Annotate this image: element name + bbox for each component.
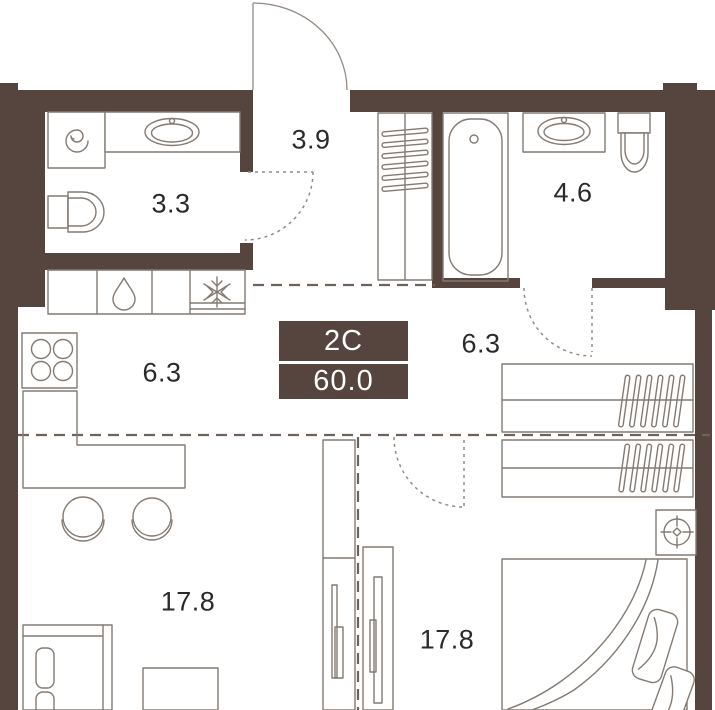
wall-segment	[0, 253, 253, 270]
wall-segment	[663, 83, 697, 90]
bar-counter	[23, 391, 185, 488]
room-label-living-room: 17.8	[161, 587, 216, 618]
wall-segment	[350, 90, 715, 112]
tv-bracket-bedroom	[370, 620, 376, 672]
entrance-door-swing-arc	[253, 3, 347, 90]
room-label-bathroom-large: 4.6	[553, 178, 592, 209]
wall-segment	[665, 92, 715, 310]
wall-segment	[592, 278, 665, 288]
tv-unit-bedroom	[363, 547, 393, 710]
bar-stool	[133, 498, 171, 536]
wall-segment	[695, 310, 712, 710]
unit-total-area: 60.0	[279, 364, 408, 399]
wall-segment	[0, 307, 18, 710]
room-label-kitchen: 6.3	[142, 358, 181, 389]
blanket-fold	[508, 560, 646, 709]
bathroom-large-fixtures	[443, 113, 650, 281]
room-label-bedroom: 17.8	[420, 625, 475, 656]
vanity-counter	[523, 113, 605, 152]
wall-segment	[0, 112, 45, 307]
wall-segment	[240, 243, 253, 270]
bathtub	[443, 113, 508, 281]
tv-unit-living	[323, 440, 355, 710]
coffee-table	[143, 668, 218, 710]
kitchen-counter	[48, 270, 245, 314]
kitchen-fixtures	[22, 270, 245, 541]
bedroom-door-arc	[394, 437, 464, 507]
bathroom-large-door-arc	[524, 288, 592, 356]
wardrobe-upper	[502, 364, 693, 432]
water-drop-icon	[113, 278, 135, 310]
tv-screen-bedroom	[374, 577, 382, 703]
unit-info-badge: 2C 60.0	[279, 321, 408, 399]
bedroom-furniture	[363, 364, 697, 710]
wall-segment	[432, 112, 443, 288]
wall-segment	[240, 112, 253, 172]
wardrobe-upper-hangers	[618, 375, 685, 427]
sofa-cushion	[36, 692, 54, 710]
unit-type: 2C	[279, 321, 408, 361]
room-label-bathroom-small: 3.3	[151, 189, 190, 220]
washing-machine	[48, 112, 105, 168]
floor-plan: 3.3 3.9 4.6 6.3 6.3 17.8 17.8 2C 60.0	[0, 0, 715, 710]
entrance-door	[253, 3, 347, 90]
wall-segment	[0, 83, 18, 90]
room-label-hall: 6.3	[461, 329, 500, 360]
bathtub-drain	[470, 135, 478, 143]
room-label-hallway: 3.9	[291, 125, 330, 156]
sofa-cushion	[36, 648, 54, 688]
living-room-furniture	[23, 440, 355, 710]
bar-stool	[63, 497, 103, 537]
toilet-tank	[618, 113, 650, 133]
hallway-closet	[378, 113, 432, 280]
bathroom-small-fixtures	[48, 112, 240, 232]
wall-segment	[0, 90, 253, 112]
toilet-tank	[48, 196, 68, 228]
tv-bracket-living	[335, 627, 343, 678]
bathroom-small-door-arc	[245, 172, 313, 240]
